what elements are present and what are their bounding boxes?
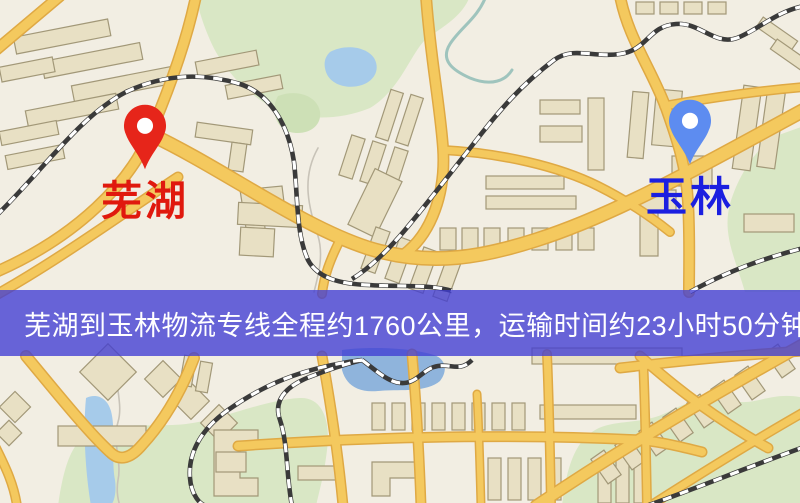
destination-pin-icon[interactable] (663, 98, 717, 166)
map-image (0, 0, 800, 503)
origin-label: 芜湖 (101, 181, 189, 222)
origin-pin-icon[interactable] (118, 103, 172, 171)
map-view[interactable]: 芜湖 玉林 芜湖到玉林物流专线全程约1760公里，运输时间约23小时50分钟. (0, 0, 800, 503)
route-info-text: 芜湖到玉林物流专线全程约1760公里，运输时间约23小时50分钟. (24, 304, 800, 343)
route-info-banner: 芜湖到玉林物流专线全程约1760公里，运输时间约23小时50分钟. (0, 290, 800, 356)
destination-label: 玉林 (646, 177, 734, 218)
